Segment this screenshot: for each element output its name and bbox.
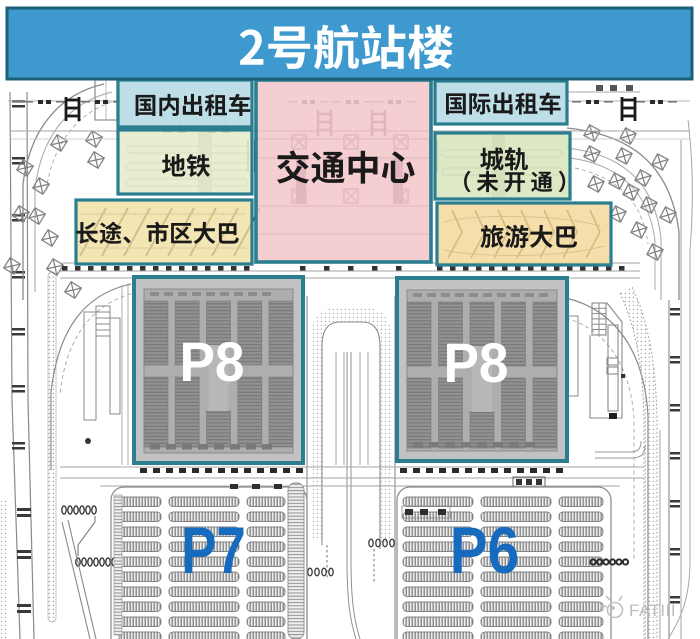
svg-text:P6: P6 <box>450 514 519 588</box>
svg-text:P8: P8 <box>443 332 508 395</box>
svg-text:FATIII: FATIII <box>629 601 676 620</box>
svg-text:P7: P7 <box>181 513 246 587</box>
svg-text:P8: P8 <box>179 331 244 394</box>
